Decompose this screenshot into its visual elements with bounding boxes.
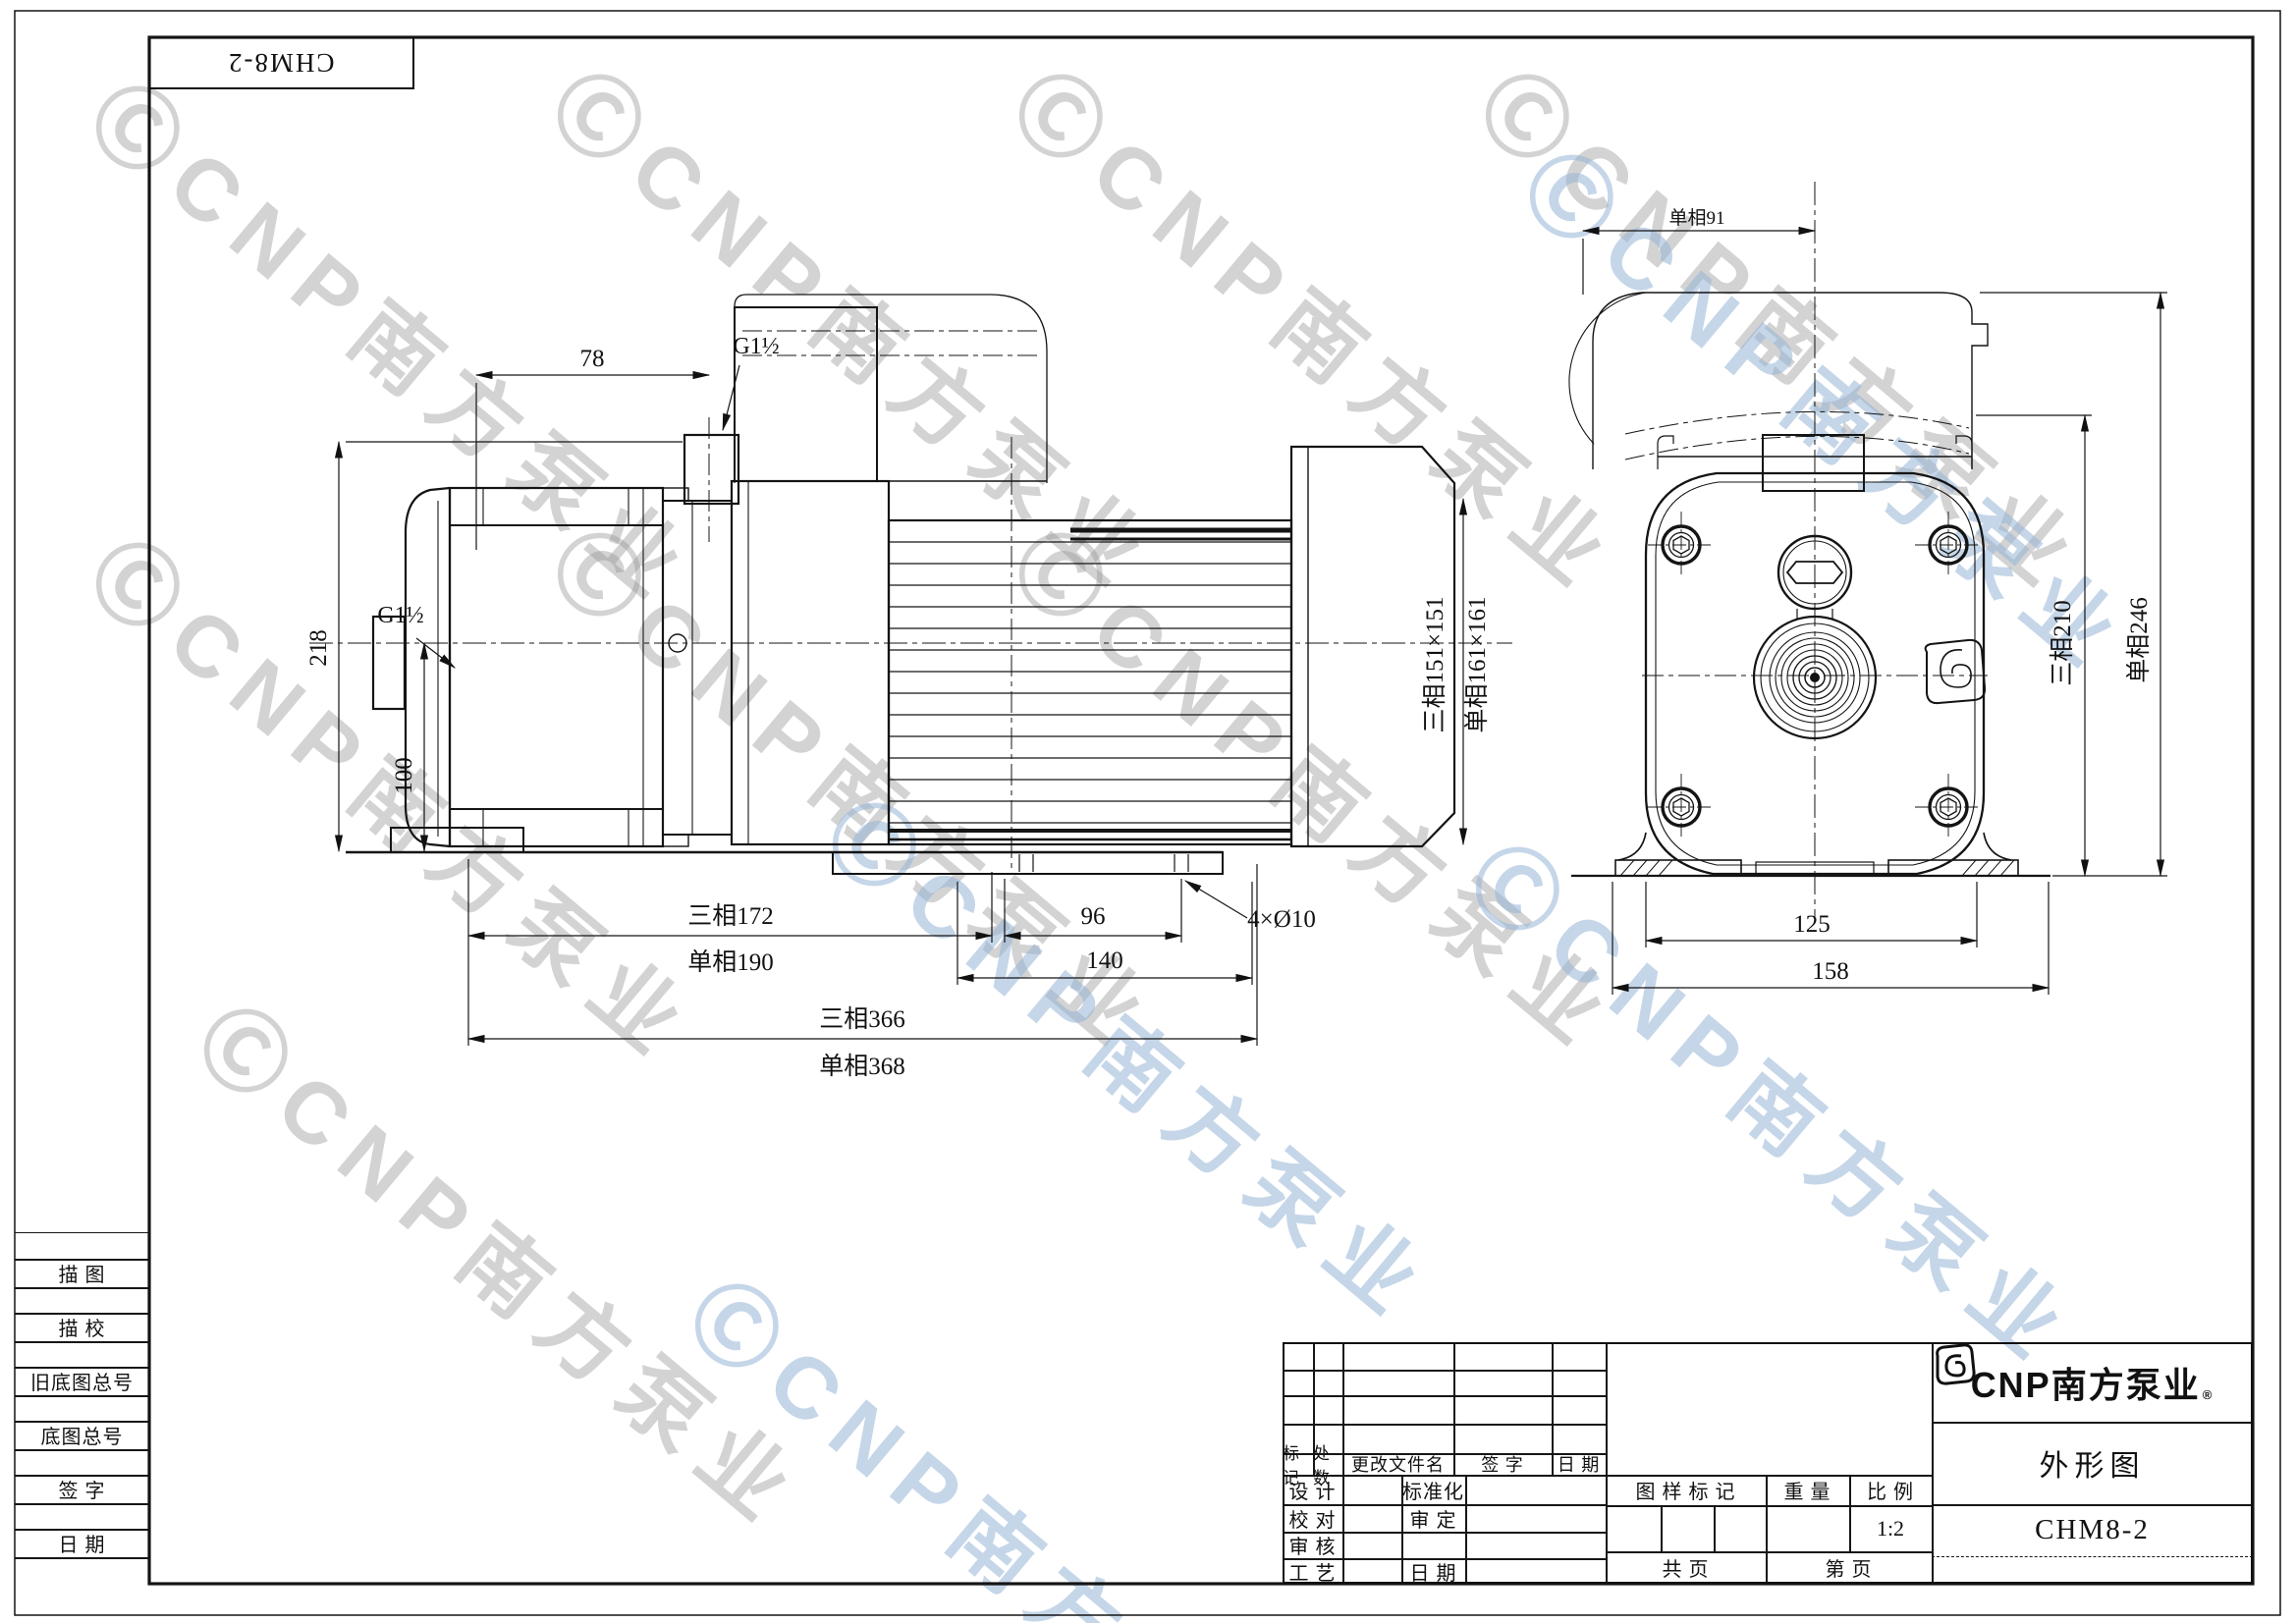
dim-172: 三相172 [687, 902, 774, 930]
dim-100: 100 [391, 757, 417, 794]
margin-column: 描 图 描 校 旧底图总号 底图总号 签 字 日 期 [15, 1232, 149, 1585]
label-date: 日 期 [1401, 1558, 1465, 1584]
model-stamp: CHM8-2 [227, 47, 335, 78]
motor-foot [833, 852, 1223, 874]
margin-row-jiudi: 旧底图总号 [15, 1367, 149, 1395]
rev-header-date: 日 期 [1552, 1453, 1606, 1475]
suction-port [373, 617, 405, 709]
header-weight: 重 量 [1766, 1475, 1849, 1505]
dim-125: 125 [1793, 911, 1831, 938]
rev-header-file: 更改文件名 [1342, 1453, 1453, 1475]
front-view [1569, 182, 2167, 995]
front-feet [1571, 833, 2050, 876]
margin-row-miaotu: 描 图 [15, 1259, 149, 1287]
dim-368: 单相368 [819, 1053, 905, 1080]
rev-header-count: 处数 [1313, 1453, 1342, 1475]
title-block: 标记 处数 更改文件名 签 字 日 期 设 计 标准化 校 对 审 定 审 核 … [1283, 1342, 2253, 1584]
dim-91: 单相91 [1668, 207, 1724, 229]
label-audit: 审 核 [1283, 1532, 1342, 1558]
label-approve: 审 定 [1401, 1504, 1465, 1532]
model-stamp-box: CHM8-2 [149, 37, 414, 89]
margin-row-riqi: 日 期 [15, 1529, 149, 1557]
rev-header-mark: 标记 [1283, 1453, 1313, 1475]
motor-front [732, 481, 889, 844]
discharge-port [684, 435, 738, 504]
cnp-logo-icon [1932, 1342, 1977, 1387]
dim-246: 单相246 [2125, 597, 2153, 683]
label-design: 设 计 [1283, 1475, 1342, 1504]
drawing-sheet: ⒸCNP南方泵业 ⒸCNP南方泵业 ⒸCNP南方泵业 ⒸCNP南方泵业 ⒸCNP… [0, 0, 2296, 1623]
dim-g-left: G1½ [377, 603, 423, 628]
dim-190: 单相190 [687, 948, 774, 976]
terminal-cover-front [1593, 293, 1988, 469]
brand-text: CNP南方泵业 [1971, 1357, 2201, 1408]
doc-type: 外形图 [1932, 1422, 2253, 1504]
dim-161: 单相161×161 [1463, 596, 1491, 732]
dim-218: 218 [305, 629, 332, 667]
dim-96: 96 [1081, 903, 1106, 930]
dim-366: 三相366 [819, 1005, 905, 1033]
side-view [309, 295, 1512, 1046]
label-check: 校 对 [1283, 1504, 1342, 1532]
header-drawing-mark: 图 样 标 记 [1606, 1475, 1766, 1505]
brand-cell: CNP南方泵业 ® [1932, 1342, 2253, 1422]
margin-row-miaojiao: 描 校 [15, 1313, 149, 1341]
dim-g-top: G1½ [733, 334, 779, 359]
dim-210: 三相210 [2049, 600, 2076, 686]
dim-78: 78 [580, 346, 605, 372]
total-pages: 共 页 [1606, 1551, 1766, 1584]
margin-row-qianzi: 签 字 [15, 1475, 149, 1503]
dim-151: 三相151×151 [1421, 596, 1449, 732]
motor-fins [889, 520, 1291, 844]
dim-holes: 4×Ø10 [1247, 906, 1316, 933]
rev-header-sign: 签 字 [1453, 1453, 1552, 1475]
cnp-badge-icon [1926, 640, 1985, 703]
label-process: 工 艺 [1283, 1558, 1342, 1584]
registered-mark: ® [2203, 1387, 2214, 1402]
label-standard: 标准化 [1401, 1475, 1465, 1504]
header-scale: 比 例 [1849, 1475, 1932, 1505]
dim-158: 158 [1812, 958, 1849, 985]
margin-row-ditu: 底图总号 [15, 1421, 149, 1449]
page-number: 第 页 [1766, 1551, 1932, 1584]
dim-140: 140 [1086, 947, 1123, 974]
scale-value: 1:2 [1849, 1505, 1932, 1551]
pump-head [450, 488, 663, 846]
model-number: CHM8-2 [1932, 1504, 2253, 1556]
